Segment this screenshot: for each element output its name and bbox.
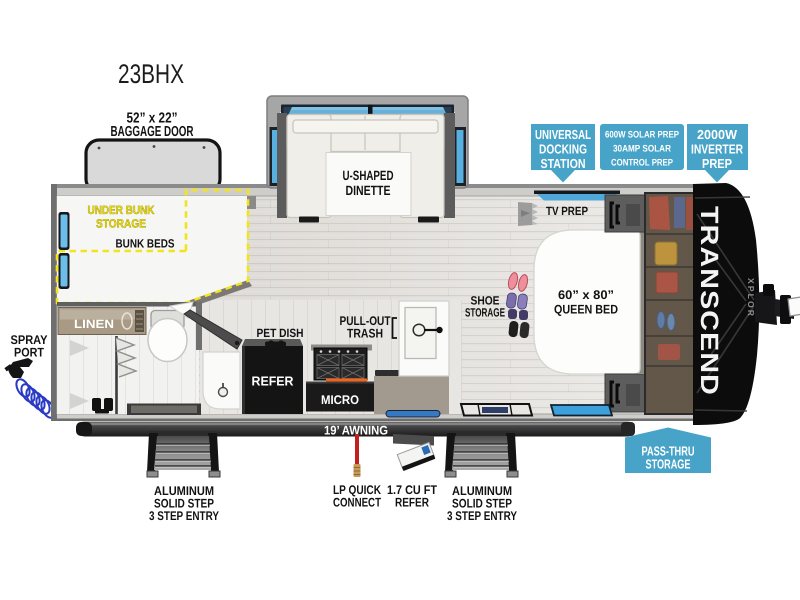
svg-text:CONTROL PREP: CONTROL PREP bbox=[611, 158, 674, 169]
svg-text:PREP: PREP bbox=[702, 156, 732, 171]
svg-text:TRANSCEND: TRANSCEND bbox=[695, 206, 723, 396]
svg-text:QUEEN BED: QUEEN BED bbox=[554, 303, 618, 317]
svg-text:LINEN: LINEN bbox=[74, 317, 114, 331]
svg-text:STORAGE: STORAGE bbox=[96, 217, 146, 231]
svg-text:TRASH: TRASH bbox=[347, 327, 383, 341]
svg-text:23BHX: 23BHX bbox=[118, 59, 184, 89]
svg-text:PET DISH: PET DISH bbox=[257, 326, 304, 340]
svg-text:60” x 80”: 60” x 80” bbox=[558, 288, 614, 302]
svg-text:U-SHAPED: U-SHAPED bbox=[343, 168, 394, 183]
svg-text:BUNK BEDS: BUNK BEDS bbox=[116, 237, 175, 251]
svg-text:3 STEP ENTRY: 3 STEP ENTRY bbox=[447, 509, 518, 523]
svg-text:2000W: 2000W bbox=[697, 127, 738, 142]
svg-text:UNDER BUNK: UNDER BUNK bbox=[88, 203, 155, 217]
svg-text:MICRO: MICRO bbox=[321, 393, 359, 407]
svg-text:BAGGAGE DOOR: BAGGAGE DOOR bbox=[111, 124, 194, 140]
svg-text:UNIVERSAL: UNIVERSAL bbox=[535, 127, 591, 142]
svg-text:TV PREP: TV PREP bbox=[546, 204, 588, 218]
svg-text:CONNECT: CONNECT bbox=[333, 496, 381, 510]
svg-text:DINETTE: DINETTE bbox=[346, 183, 391, 198]
svg-text:DOCKING: DOCKING bbox=[539, 142, 587, 157]
svg-text:REFER: REFER bbox=[252, 374, 295, 389]
svg-text:30AMP SOLAR: 30AMP SOLAR bbox=[613, 144, 671, 155]
svg-text:STORAGE: STORAGE bbox=[646, 457, 691, 472]
svg-text:3 STEP ENTRY: 3 STEP ENTRY bbox=[149, 509, 220, 523]
svg-text:PORT: PORT bbox=[14, 346, 44, 360]
svg-text:XPLOR: XPLOR bbox=[746, 278, 756, 318]
svg-text:INVERTER: INVERTER bbox=[691, 142, 743, 157]
svg-text:STORAGE: STORAGE bbox=[465, 306, 505, 320]
svg-text:600W SOLAR PREP: 600W SOLAR PREP bbox=[605, 130, 680, 141]
svg-text:STATION: STATION bbox=[541, 156, 586, 171]
svg-text:REFER: REFER bbox=[395, 496, 429, 510]
